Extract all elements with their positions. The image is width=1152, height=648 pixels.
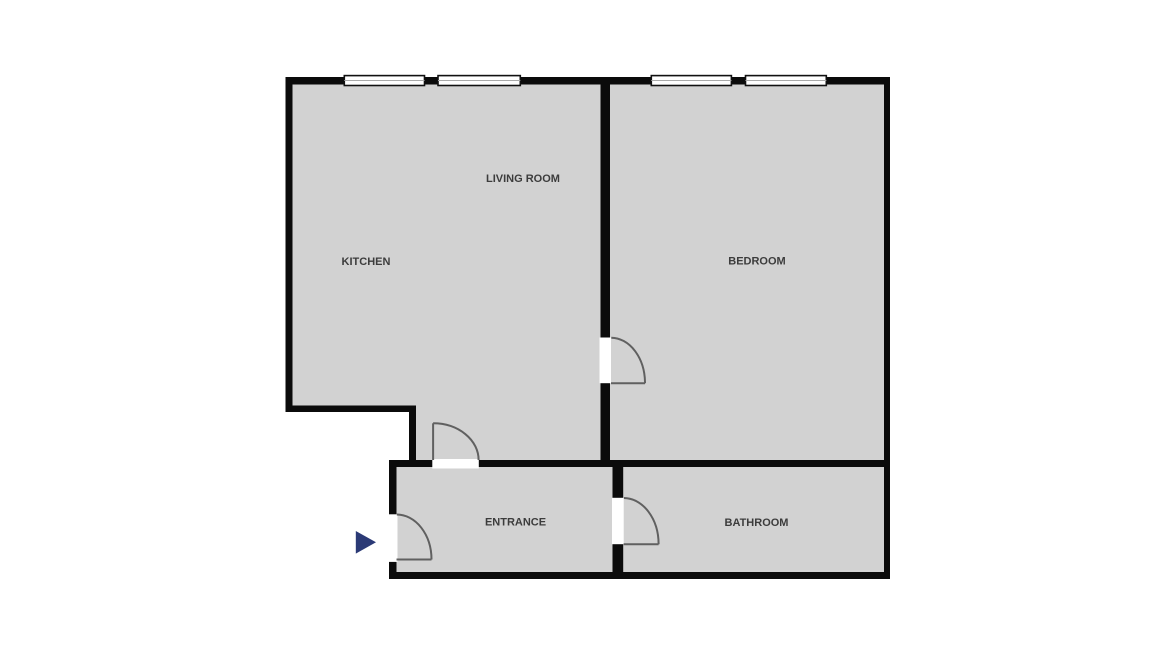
svg-text:ENTRANCE: ENTRANCE: [485, 517, 546, 529]
svg-text:BEDROOM: BEDROOM: [728, 256, 785, 268]
svg-text:BATHROOM: BATHROOM: [725, 517, 789, 529]
svg-text:KITCHEN: KITCHEN: [342, 256, 391, 268]
svg-text:LIVING ROOM: LIVING ROOM: [486, 173, 560, 185]
